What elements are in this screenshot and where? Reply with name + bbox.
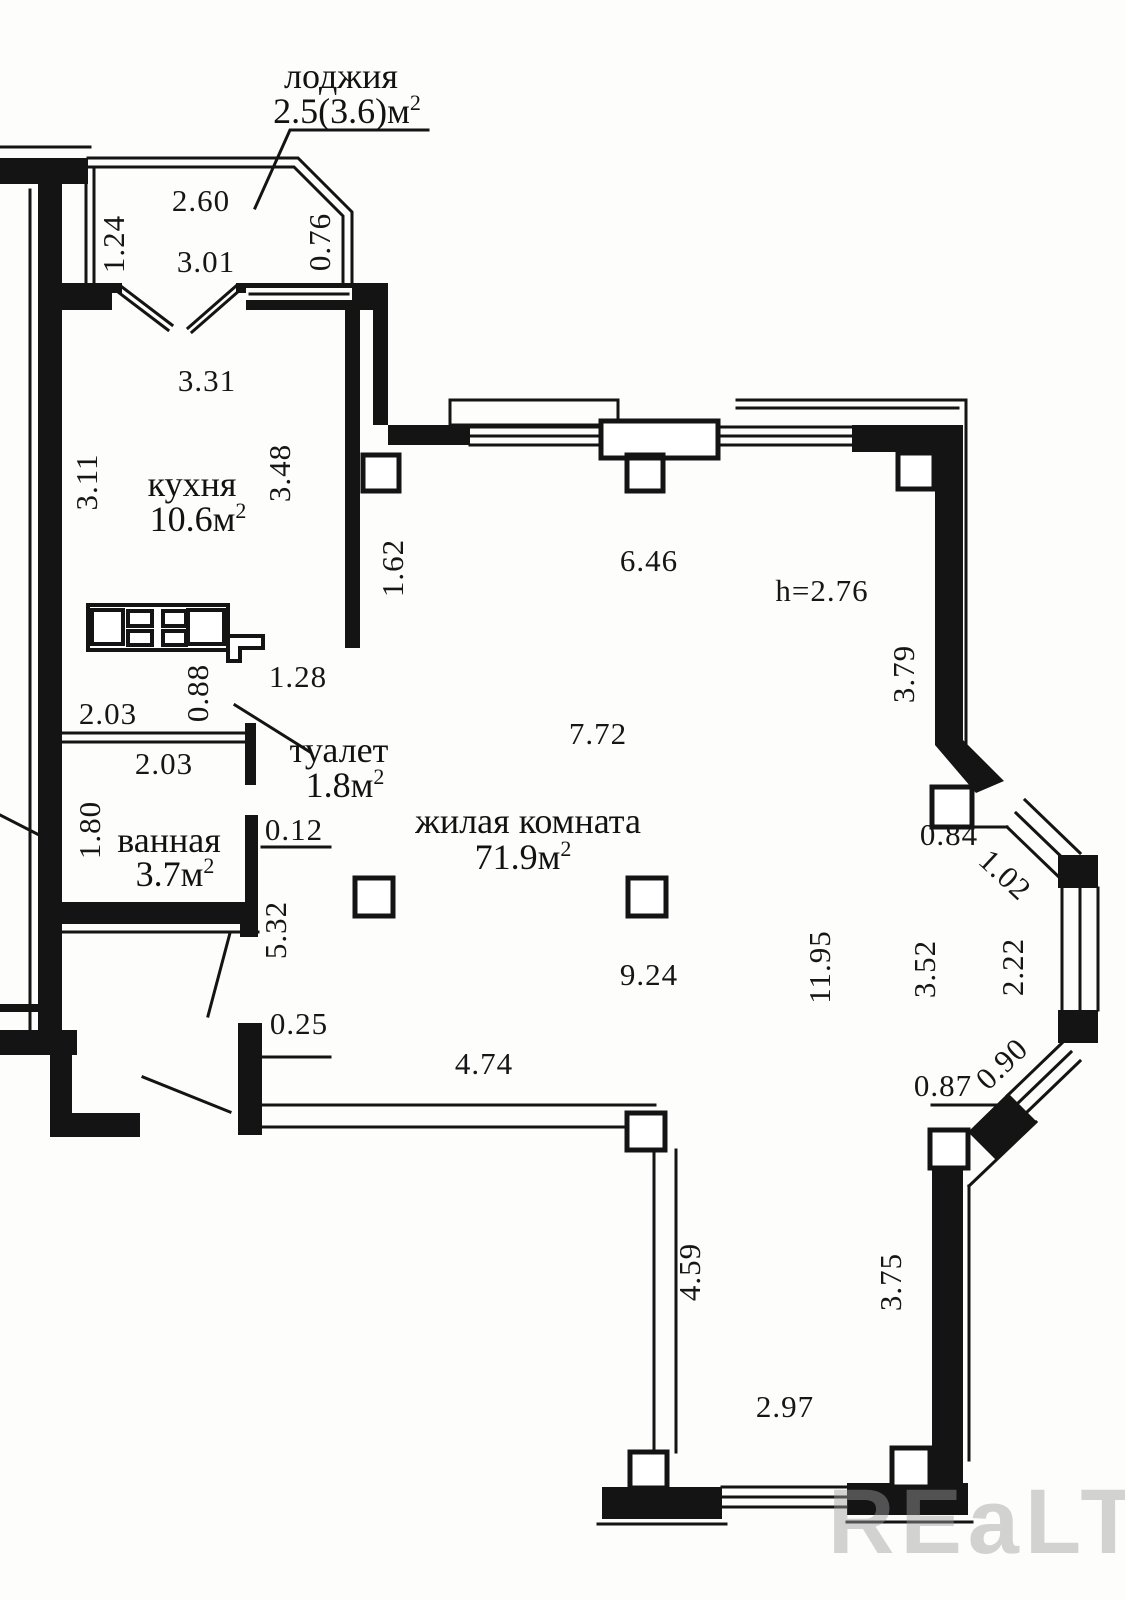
room-name: жилая комната <box>415 801 641 841</box>
sup-square: 2 <box>203 853 214 878</box>
dim-kitchen-depth: 3.48 <box>262 444 298 502</box>
dim-living-right-height: 3.52 <box>907 940 943 998</box>
dim-kitchen-width: 3.31 <box>178 363 236 399</box>
dim-living-bottom-width: 4.74 <box>455 1046 513 1082</box>
room-area-bathroom: 3.7м2 <box>136 853 215 895</box>
dim-jamb-012: 0.12 <box>265 812 323 848</box>
dim-right-wall-upper: 3.79 <box>886 645 922 703</box>
realt-watermark: REaLT <box>828 1470 1125 1575</box>
room-area-value: 71.9м <box>475 837 561 877</box>
dim-living-height: 11.95 <box>802 930 838 1004</box>
dim-living-lower-width: 9.24 <box>620 957 678 993</box>
kitchen-counter <box>88 605 263 661</box>
ceiling-height-note: h=2.76 <box>775 573 868 609</box>
dim-loggia-left: 1.24 <box>96 215 132 273</box>
dim-loggia-bottom: 3.01 <box>177 244 235 280</box>
dim-living-mid-width: 7.72 <box>569 716 627 752</box>
dim-hall-length: 5.32 <box>258 901 294 959</box>
room-area-living: 71.9м2 <box>475 836 572 878</box>
dim-bottom-width: 2.97 <box>756 1389 814 1425</box>
sup-square: 2 <box>560 836 571 861</box>
room-area-value: 3.7м <box>136 854 204 894</box>
dim-bath-width: 2.03 <box>135 746 193 782</box>
room-area-kitchen: 10.6м2 <box>150 498 247 540</box>
sup-square: 2 <box>235 498 246 523</box>
sup-square: 2 <box>410 90 421 115</box>
dim-toilet-depth: 0.88 <box>180 664 216 722</box>
dim-right-wall-lower: 3.75 <box>873 1253 909 1311</box>
dim-loggia-width: 2.60 <box>172 183 230 219</box>
room-area-toilet: 1.8м2 <box>306 764 385 806</box>
room-area-value: 1.8м <box>306 765 374 805</box>
dim-kitchen-left: 3.11 <box>69 453 105 510</box>
dim-living-top-width: 6.46 <box>620 543 678 579</box>
dim-toilet-width: 2.03 <box>79 696 137 732</box>
dim-wall-162: 1.62 <box>375 539 411 597</box>
sup-square: 2 <box>373 764 384 789</box>
dim-bay-top: 0.84 <box>920 817 978 853</box>
dim-bath-depth: 1.80 <box>72 801 108 859</box>
room-area-loggia: 2.5(3.6)м2 <box>273 90 421 132</box>
dim-entry-jamb: 0.25 <box>270 1006 328 1042</box>
dim-bay-bottom: 0.87 <box>914 1068 972 1104</box>
room-area-value: 2.5(3.6)м <box>273 91 410 131</box>
columns-and-frames <box>355 421 972 1488</box>
floor-plan: лоджия 2.5(3.6)м2 кухня 10.6м2 туалет 1.… <box>0 0 1125 1600</box>
dim-bay-vertical: 2.22 <box>995 938 1031 996</box>
dim-passage-128: 1.28 <box>269 659 327 695</box>
dim-living-left-lower: 4.59 <box>672 1243 708 1301</box>
dim-loggia-side: 0.76 <box>302 213 338 271</box>
room-area-value: 10.6м <box>150 499 236 539</box>
